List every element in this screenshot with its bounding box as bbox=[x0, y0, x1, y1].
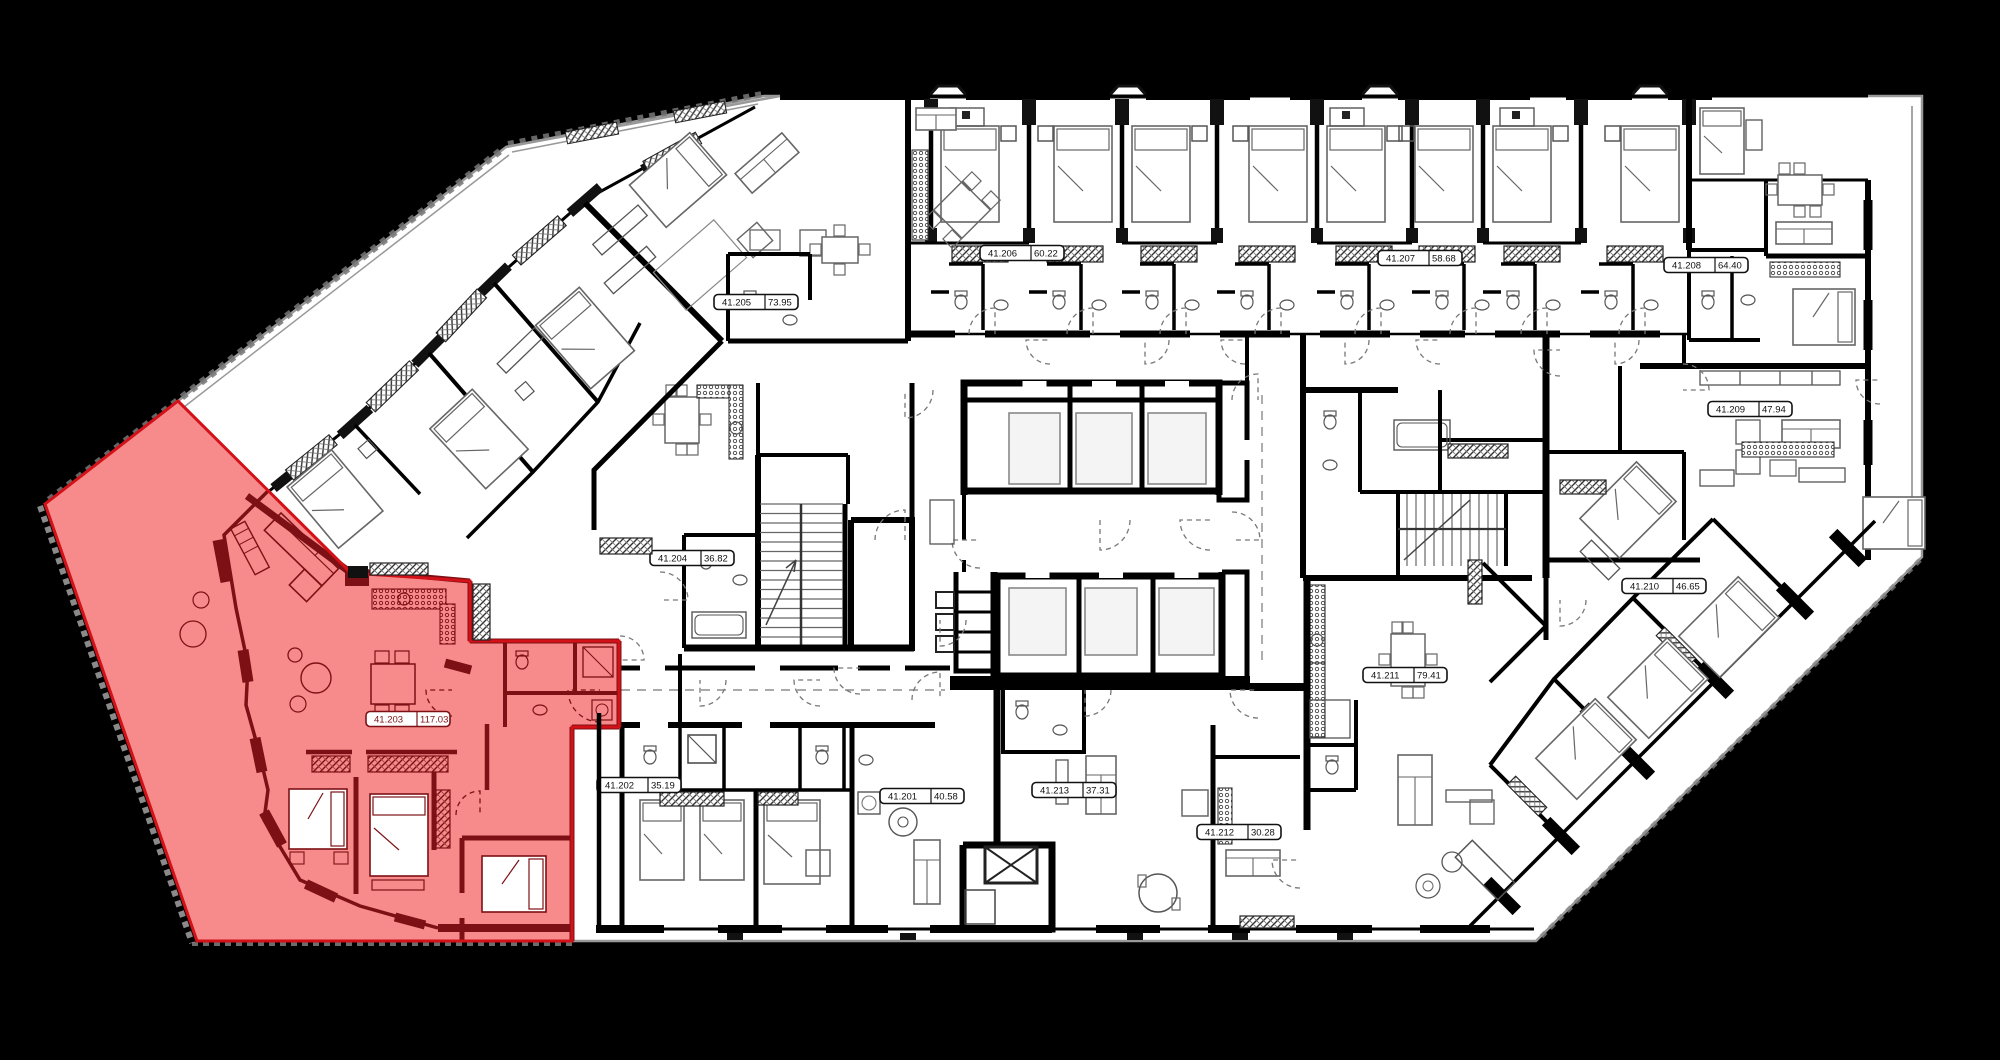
svg-text:60.22: 60.22 bbox=[1034, 249, 1058, 260]
svg-text:41.207: 41.207 bbox=[1386, 254, 1415, 265]
svg-text:41.208: 41.208 bbox=[1672, 261, 1701, 272]
svg-text:41.201: 41.201 bbox=[888, 792, 917, 803]
svg-text:47.94: 47.94 bbox=[1762, 405, 1786, 416]
svg-text:46.65: 46.65 bbox=[1676, 582, 1700, 593]
svg-text:79.41: 79.41 bbox=[1417, 671, 1441, 682]
svg-text:58.68: 58.68 bbox=[1432, 254, 1456, 265]
svg-text:40.58: 40.58 bbox=[934, 792, 958, 803]
svg-text:36.82: 36.82 bbox=[704, 554, 728, 565]
svg-text:73.95: 73.95 bbox=[768, 298, 792, 309]
svg-text:41.203: 41.203 bbox=[374, 715, 403, 726]
svg-text:41.205: 41.205 bbox=[722, 298, 751, 309]
svg-text:41.212: 41.212 bbox=[1205, 828, 1234, 839]
svg-text:41.206: 41.206 bbox=[988, 249, 1017, 260]
svg-text:117.03: 117.03 bbox=[420, 715, 448, 726]
svg-text:41.213: 41.213 bbox=[1040, 786, 1069, 797]
svg-text:35.19: 35.19 bbox=[651, 781, 675, 792]
svg-text:41.202: 41.202 bbox=[605, 781, 634, 792]
svg-text:41.204: 41.204 bbox=[658, 554, 687, 565]
svg-text:64.40: 64.40 bbox=[1718, 261, 1742, 272]
svg-text:41.210: 41.210 bbox=[1630, 582, 1659, 593]
svg-text:41.211: 41.211 bbox=[1371, 671, 1399, 682]
svg-text:37.31: 37.31 bbox=[1086, 786, 1110, 797]
svg-text:41.209: 41.209 bbox=[1716, 405, 1745, 416]
svg-text:30.28: 30.28 bbox=[1251, 828, 1275, 839]
